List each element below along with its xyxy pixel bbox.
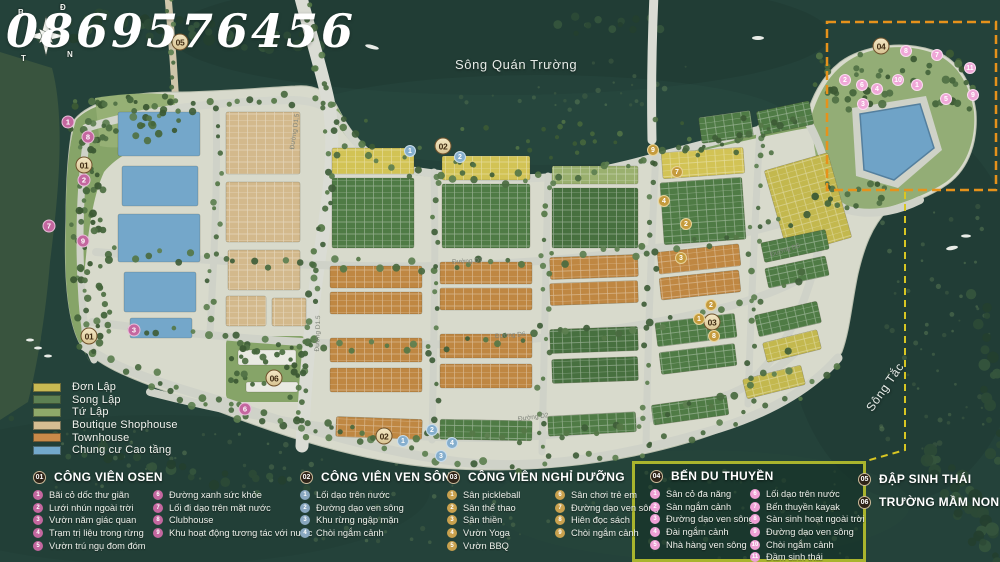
legend-item: 1Sân cỏ đa năng [650,488,750,501]
legend-item-label: Lưới nhún ngoài trời [49,503,134,513]
legend-section-header: 02CÔNG VIÊN VEN SÔNG [300,470,460,484]
legend-item: 7Bến thuyền kayak [750,501,865,514]
legend-row: Song Lập [33,394,178,407]
legend-item: 9Chòi ngắm cảnh [555,527,659,540]
legend-item: 8Hiên đọc sách [555,514,659,527]
legend-color-swatch [33,395,61,404]
legend-section-header: 05ĐẬP SINH THÁI [858,472,999,486]
legend-label: Boutique Shophouse [72,419,178,431]
legend-item: 5Nhà hàng ven sông [650,538,750,551]
legend-item-number: 10 [750,540,760,550]
legend-item-label: Lối dạo trên nước [316,490,390,500]
legend-item: 2Đường dạo ven sông [300,502,404,515]
legend-item-label: Sàn ngắm cảnh [666,502,731,512]
legend-item: 8Clubhouse [153,514,312,527]
legend-item: 3Vườn năm giác quan [33,514,153,527]
masterplan-map: 0869576456 Đ B T N Sông Quán Trường Sông… [0,0,1000,562]
watermark-phone-number: 0869576456 [6,4,356,58]
legend-columns: 1Lối dạo trên nước2Đường dạo ven sông3Kh… [300,489,460,539]
legend-row: Đơn Lập [33,381,178,394]
legend-row: Tứ Lập [33,406,178,419]
legend-item: 9Khu hoạt động tương tác với nước [153,527,312,540]
legend-item-label: Chòi ngắm cảnh [766,540,834,550]
legend-item-label: Lối dạo trên nước [766,489,840,499]
legend-column: 6Đường xanh sức khỏe7Lối đi dạo trên mặt… [153,489,312,552]
legend-item-number: 3 [33,515,43,525]
legend-item-number: 7 [153,503,163,513]
legend-item-label: Vườn BBQ [463,541,509,551]
legend-item-label: Sân cỏ đa năng [666,489,731,499]
legend-item: 10Chòi ngắm cảnh [750,538,865,551]
legend-item-label: Vườn trú ngụ đom đóm [49,541,146,551]
legend-item: 9Đường dạo ven sông [750,526,865,539]
legend-item-number: 4 [650,527,660,537]
legend-item-label: Clubhouse [169,515,213,525]
legend-item-number: 2 [650,502,660,512]
legend-item-number: 6 [153,490,163,500]
legend-item-number: 6 [750,489,760,499]
legend-item-number: 7 [555,503,565,513]
legend-item-label: Bãi cỏ dốc thư giãn [49,490,129,500]
legend-item-number: 8 [750,514,760,524]
legend-section-number: 05 [858,473,871,486]
legend-item-label: Nhà hàng ven sông [666,540,747,550]
legend-item-label: Đường dạo ven sông [766,527,854,537]
legend-color-swatch [33,433,61,442]
legend-item: 1Sân pickleball [447,489,555,502]
legend-section-marina: 04BẾN DU THUYỀN1Sân cỏ đa năng2Sàn ngắm … [650,469,865,562]
legend-item-number: 8 [153,515,163,525]
legend-label: Song Lập [72,394,121,406]
legend-item-number: 9 [153,528,163,538]
legend-item-number: 2 [447,503,457,513]
legend-section-header: 01CÔNG VIÊN OSEN [33,470,312,484]
housing-type-legend: Đơn LậpSong LậpTứ LậpBoutique ShophouseT… [33,381,178,457]
legend-item-number: 5 [33,541,43,551]
legend-item-label: Hiên đọc sách [571,515,630,525]
legend-item-label: Đài ngắm cảnh [666,527,729,537]
legend-item-label: Trạm trị liệu trong rừng [49,528,144,538]
legend-item-number: 7 [750,502,760,512]
legend-item: 5Vườn trú ngụ đom đóm [33,539,153,552]
legend-item-number: 4 [447,528,457,538]
legend-item: 2Lưới nhún ngoài trời [33,502,153,515]
legend-section-title: ĐẬP SINH THÁI [879,472,971,486]
legend-item-label: Đường dạo ven sông [571,503,659,513]
legend-item-number: 3 [300,515,310,525]
legend-item-number: 9 [555,528,565,538]
legend-item-label: Đường dạo ven sông [666,514,754,524]
legend-item-label: Đầm sinh thái [766,552,823,562]
legend-item: 1Lối dạo trên nước [300,489,404,502]
river-label-song-quan-truong: Sông Quán Trường [455,57,577,72]
legend-item-label: Sân chơi trẻ em [571,490,637,500]
legend-section-number: 02 [300,471,313,484]
legend-item: 6Đường xanh sức khỏe [153,489,312,502]
legend-item-number: 3 [447,515,457,525]
legend-section-number: 01 [33,471,46,484]
legend-section-osen-park: 01CÔNG VIÊN OSEN1Bãi cỏ dốc thư giãn2Lướ… [33,470,312,552]
legend-section-header: 03CÔNG VIÊN NGHỈ DƯỠNG [447,470,659,484]
legend-row: Chung cư Cao tầng [33,444,178,457]
legend-column: 1Sân cỏ đa năng2Sàn ngắm cảnh3Đường dạo … [650,488,750,562]
legend-color-swatch [33,446,61,455]
legend-row: Townhouse [33,431,178,444]
legend-item: 6Sân chơi trẻ em [555,489,659,502]
legend-item-label: Vườn Yoga [463,528,510,538]
legend-item-number: 2 [33,503,43,513]
legend-item: 3Khu rừng ngập mặn [300,514,404,527]
legend-item: 11Đầm sinh thái [750,551,865,562]
legend-item-number: 1 [447,490,457,500]
legend-section-title: BẾN DU THUYỀN [671,469,774,483]
legend-section-header: 06TRƯỜNG MẦM NON [858,495,999,509]
legend-color-swatch [33,421,61,430]
legend-color-swatch [33,383,61,392]
legend-label: Tứ Lập [72,406,109,418]
legend-item-label: Chòi ngắm cảnh [316,528,384,538]
legend-item-number: 1 [33,490,43,500]
legend-item: 2Sân thể thao [447,502,555,515]
legend-item-label: Sàn sinh hoạt ngoài trời [766,514,865,524]
legend-item-number: 3 [650,514,660,524]
legend-column: 1Sân pickleball2Sân thể thao3Sân thiền4V… [447,489,555,552]
legend-column: 1Lối dạo trên nước2Đường dạo ven sông3Kh… [300,489,404,539]
legend-item-number: 4 [33,528,43,538]
legend-section-dam-and-school: 05ĐẬP SINH THÁI06TRƯỜNG MẦM NON [858,472,999,518]
legend-item-label: Khu hoạt động tương tác với nước [169,528,312,538]
legend-item: 7Đường dạo ven sông [555,502,659,515]
legend-item-number: 4 [300,528,310,538]
legend-item: 6Lối dạo trên nước [750,488,865,501]
legend-item-number: 6 [555,490,565,500]
legend-section-title: CÔNG VIÊN OSEN [54,470,163,484]
legend-item-number: 5 [447,541,457,551]
legend-section-title: CÔNG VIÊN NGHỈ DƯỠNG [468,470,625,484]
legend-section-riverside-park: 02CÔNG VIÊN VEN SÔNG1Lối dạo trên nước2Đ… [300,470,460,539]
legend-item: 3Đường dạo ven sông [650,513,750,526]
legend-section-number: 06 [858,496,871,509]
legend-item: 4Trạm trị liệu trong rừng [33,527,153,540]
legend-column: 1Bãi cỏ dốc thư giãn2Lưới nhún ngoài trờ… [33,489,153,552]
legend-column: 6Lối dạo trên nước7Bến thuyền kayak8Sàn … [750,488,865,562]
legend-item-label: Đường xanh sức khỏe [169,490,262,500]
legend-label: Townhouse [72,432,129,444]
legend-item: 4Đài ngắm cảnh [650,526,750,539]
legend-item: 4Chòi ngắm cảnh [300,527,404,540]
legend-color-swatch [33,408,61,417]
legend-item: 1Bãi cỏ dốc thư giãn [33,489,153,502]
legend-item-number: 11 [750,552,760,562]
legend-item-number: 1 [300,490,310,500]
legend-columns: 1Bãi cỏ dốc thư giãn2Lưới nhún ngoài trờ… [33,489,312,552]
legend-column: 6Sân chơi trẻ em7Đường dạo ven sông8Hiên… [555,489,659,552]
legend-row: Boutique Shophouse [33,419,178,432]
legend-item-label: Sân pickleball [463,490,520,500]
legend-item: 8Sàn sinh hoạt ngoài trời [750,513,865,526]
legend-label: Đơn Lập [72,381,116,393]
legend-item-label: Đường dạo ven sông [316,503,404,513]
legend-columns: 1Sân pickleball2Sân thể thao3Sân thiền4V… [447,489,659,552]
legend-section-header: 04BẾN DU THUYỀN [650,469,865,483]
legend-section-number: 04 [650,470,663,483]
legend-section-number: 03 [447,471,460,484]
legend-item: 5Vườn BBQ [447,539,555,552]
legend-item-label: Sân thể thao [463,503,516,513]
legend-item-number: 9 [750,527,760,537]
legend-item-label: Bến thuyền kayak [766,502,840,512]
legend-item-label: Sân thiền [463,515,502,525]
legend-columns: 1Sân cỏ đa năng2Sàn ngắm cảnh3Đường dạo … [650,488,865,562]
legend-item-number: 1 [650,489,660,499]
legend-item: 2Sàn ngắm cảnh [650,501,750,514]
legend-item: 3Sân thiền [447,514,555,527]
legend-item-label: Vườn năm giác quan [49,515,136,525]
legend-item: 4Vườn Yoga [447,527,555,540]
legend-section-wellness-park: 03CÔNG VIÊN NGHỈ DƯỠNG1Sân pickleball2Sâ… [447,470,659,552]
legend-label: Chung cư Cao tầng [72,444,171,456]
legend-item: 7Lối đi dạo trên mặt nước [153,502,312,515]
legend-item-label: Chòi ngắm cảnh [571,528,639,538]
legend-item-number: 5 [650,540,660,550]
legend-item-label: Khu rừng ngập mặn [316,515,399,525]
legend-item-number: 8 [555,515,565,525]
legend-section-title: CÔNG VIÊN VEN SÔNG [321,470,460,484]
legend-item-number: 2 [300,503,310,513]
legend-item-label: Lối đi dạo trên mặt nước [169,503,271,513]
legend-section-title: TRƯỜNG MẦM NON [879,495,999,509]
